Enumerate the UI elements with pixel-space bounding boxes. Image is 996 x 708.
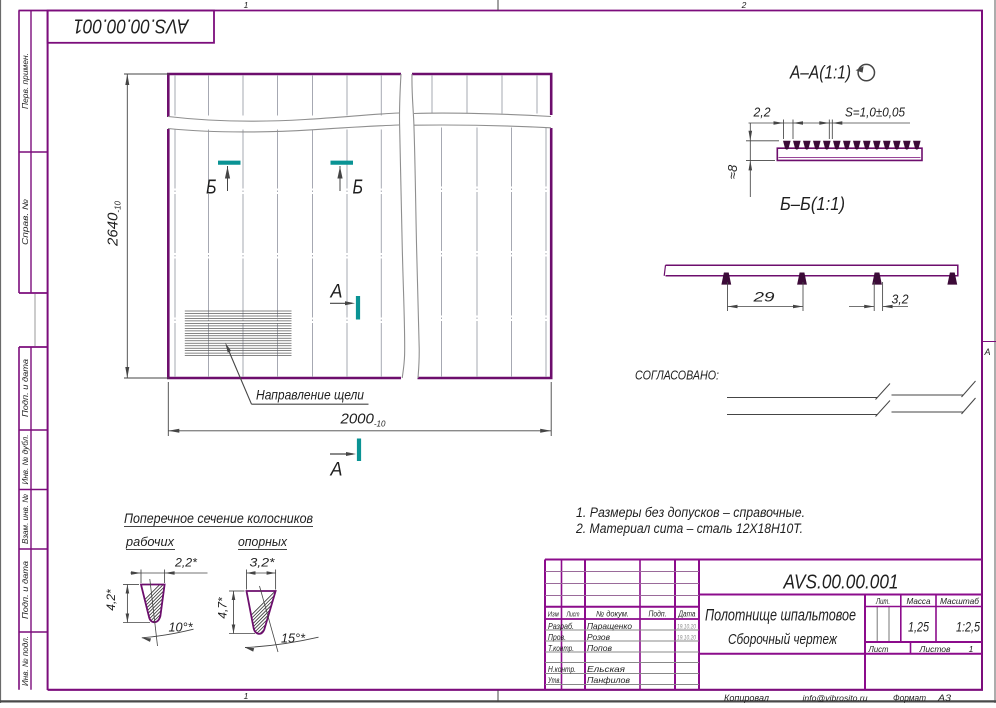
- svg-text:А: А: [330, 460, 343, 481]
- svg-text:Справ. №: Справ. №: [21, 199, 30, 245]
- svg-text:Б: Б: [206, 177, 217, 199]
- svg-text:Н.контр.: Н.контр.: [548, 664, 576, 674]
- svg-text:AVS.00.00.001: AVS.00.00.001: [783, 572, 899, 594]
- svg-text:Панфилов: Панфилов: [587, 675, 631, 685]
- svg-text:Б: Б: [353, 177, 364, 199]
- svg-text:Утв.: Утв.: [547, 675, 561, 685]
- svg-text:Масштаб: Масштаб: [940, 596, 980, 606]
- svg-text:Направление щели: Направление щели: [256, 387, 364, 403]
- svg-text:1:2,5: 1:2,5: [956, 619, 980, 635]
- svg-text:1. Размеры без допусков – спра: 1. Размеры без допусков – справочные.: [576, 505, 805, 520]
- svg-text:info@vibrosito.ru: info@vibrosito.ru: [803, 693, 868, 703]
- svg-text:Т.контр.: Т.контр.: [548, 643, 574, 653]
- svg-text:Ельская: Ельская: [587, 664, 626, 674]
- svg-text:19.10.20: 19.10.20: [677, 636, 697, 642]
- svg-text:рабочих: рабочих: [125, 534, 174, 549]
- svg-text:Перв. примен.: Перв. примен.: [21, 53, 30, 109]
- svg-text:Пров.: Пров.: [548, 632, 566, 642]
- svg-text:19.10.20: 19.10.20: [677, 625, 697, 631]
- svg-text:Подп. и дата: Подп. и дата: [21, 560, 30, 619]
- svg-text:Попов: Попов: [587, 643, 613, 653]
- svg-text:Взам. инв. №: Взам. инв. №: [21, 494, 30, 544]
- svg-text:2. Материал сита – сталь 12Х18: 2. Материал сита – сталь 12Х18Н10Т.: [575, 521, 803, 536]
- svg-text:опорных: опорных: [238, 534, 287, 549]
- svg-text:3,2: 3,2: [892, 292, 910, 307]
- svg-text:Поперечное сечение колосников: Поперечное сечение колосников: [124, 510, 313, 526]
- svg-text:Формат: Формат: [893, 693, 926, 703]
- svg-text:1,25: 1,25: [908, 619, 929, 635]
- svg-text:Лит.: Лит.: [875, 596, 890, 606]
- svg-text:Лист: Лист: [566, 610, 580, 619]
- svg-text:3,2*: 3,2*: [250, 556, 275, 570]
- svg-text:Подп. и дата: Подп. и дата: [21, 358, 30, 417]
- svg-text:Паращенко: Паращенко: [587, 621, 632, 631]
- svg-text:Полотнище шпальтовое: Полотнище шпальтовое: [705, 607, 856, 625]
- svg-text:Лист: Лист: [868, 644, 889, 654]
- svg-text:4,7*: 4,7*: [216, 597, 230, 619]
- svg-text:Копировал: Копировал: [724, 693, 769, 703]
- svg-text:2,2*: 2,2*: [174, 556, 197, 570]
- svg-text:1: 1: [244, 691, 249, 701]
- svg-text:Инв. № дубл.: Инв. № дубл.: [21, 435, 30, 485]
- svg-text:А: А: [983, 347, 990, 357]
- svg-text:А: А: [330, 282, 343, 303]
- svg-text:AVS.00.00.001: AVS.00.00.001: [74, 15, 190, 37]
- svg-text:4,2*: 4,2*: [104, 589, 118, 611]
- svg-text:2,2: 2,2: [753, 105, 772, 120]
- svg-text:1: 1: [244, 0, 249, 10]
- svg-text:29: 29: [752, 289, 775, 305]
- svg-text:А–А(1:1): А–А(1:1): [789, 63, 851, 83]
- svg-text:Розов: Розов: [587, 632, 611, 642]
- svg-text:Б–Б(1:1): Б–Б(1:1): [780, 194, 845, 214]
- svg-text:2: 2: [741, 0, 747, 10]
- svg-text:Сборочный чертеж: Сборочный чертеж: [728, 632, 838, 648]
- svg-text:№ докум.: № докум.: [596, 610, 629, 619]
- svg-text:≈8: ≈8: [725, 164, 740, 179]
- svg-text:Листов: Листов: [918, 644, 951, 654]
- svg-text:СОГЛАСОВАНО:: СОГЛАСОВАНО:: [635, 368, 719, 383]
- svg-text:Инв. № подл.: Инв. № подл.: [21, 636, 30, 686]
- svg-text:Подп.: Подп.: [649, 610, 667, 619]
- svg-text:Изм: Изм: [548, 610, 559, 619]
- svg-text:15°*: 15°*: [281, 632, 306, 646]
- svg-text:1: 1: [969, 644, 974, 654]
- svg-text:Разраб.: Разраб.: [548, 621, 574, 631]
- svg-text:S=1,0±0,05: S=1,0±0,05: [845, 105, 906, 120]
- svg-text:А3: А3: [937, 693, 951, 703]
- svg-text:10°*: 10°*: [169, 621, 194, 635]
- svg-text:Масса: Масса: [907, 596, 931, 606]
- svg-text:Дата: Дата: [678, 610, 696, 619]
